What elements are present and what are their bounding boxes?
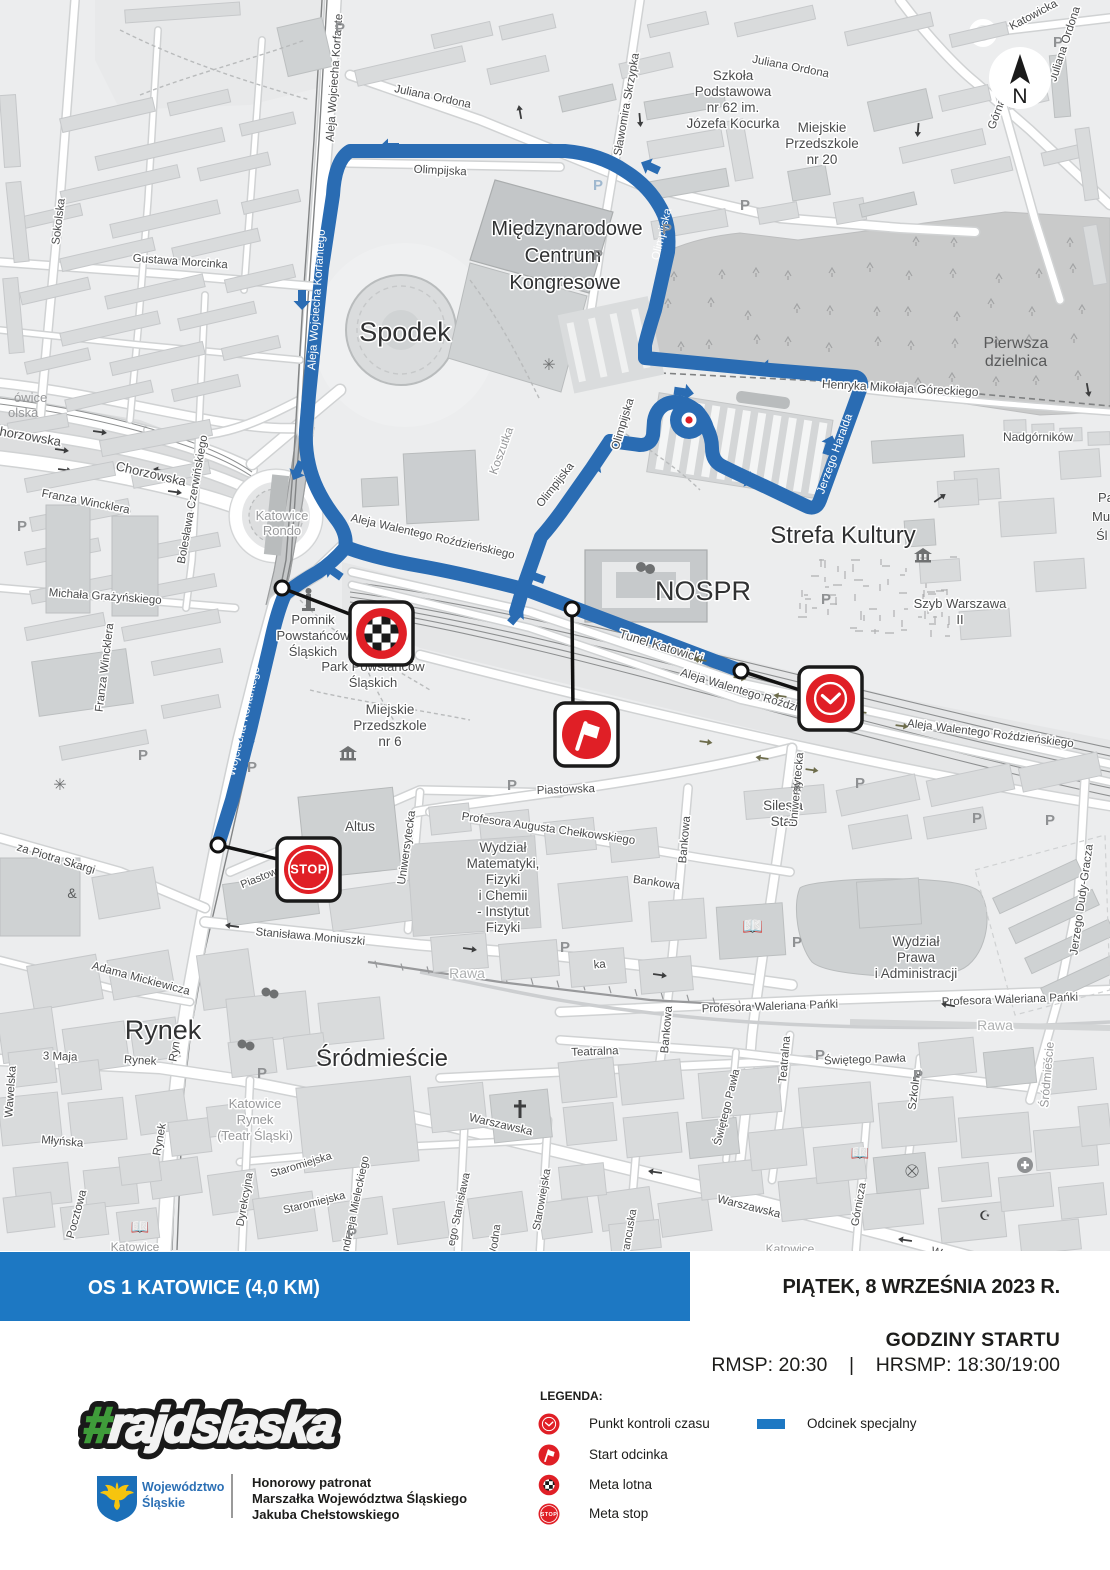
svg-text:Pierwsza: Pierwsza bbox=[984, 335, 1049, 352]
svg-text:P: P bbox=[913, 1067, 923, 1084]
svg-text:Pomnik: Pomnik bbox=[291, 612, 335, 627]
svg-text:ka: ka bbox=[593, 958, 607, 971]
svg-text:Miejskie: Miejskie bbox=[798, 120, 847, 135]
svg-text:Rynek: Rynek bbox=[124, 1054, 157, 1068]
svg-text:P: P bbox=[1053, 34, 1063, 51]
svg-text:P: P bbox=[507, 777, 517, 794]
svg-text:Katowice: Katowice bbox=[111, 1240, 160, 1251]
svg-text:Fizyki: Fizyki bbox=[486, 872, 521, 887]
svg-text:P: P bbox=[821, 591, 831, 608]
svg-text:Strefa Kultury: Strefa Kultury bbox=[770, 522, 915, 549]
svg-text:#rajdslaska: #rajdslaska bbox=[81, 1397, 338, 1453]
svg-text:Katowice: Katowice bbox=[256, 508, 309, 523]
svg-text:P: P bbox=[593, 247, 603, 264]
svg-text:Wydział: Wydział bbox=[479, 840, 526, 855]
svg-text:✳: ✳ bbox=[542, 357, 555, 374]
svg-text:nr 62 im.: nr 62 im. bbox=[707, 100, 760, 115]
svg-text:✳: ✳ bbox=[790, 780, 803, 797]
svg-text:Matematyki,: Matematyki, bbox=[467, 856, 540, 871]
svg-text:Przedszkole: Przedszkole bbox=[353, 718, 427, 733]
svg-text:nr 6: nr 6 bbox=[378, 734, 401, 749]
svg-text:P: P bbox=[662, 221, 672, 238]
svg-text:Fizyki: Fizyki bbox=[486, 920, 521, 935]
svg-text:i Administracji: i Administracji bbox=[875, 966, 958, 981]
svg-text:Śródmieście: Śródmieście bbox=[316, 1044, 448, 1072]
svg-text:Prawa: Prawa bbox=[897, 950, 936, 965]
svg-text:Śl: Śl bbox=[1096, 528, 1108, 543]
svg-text:N: N bbox=[1012, 85, 1027, 108]
svg-text:Centrum: Centrum bbox=[525, 245, 602, 267]
svg-text:P: P bbox=[815, 1047, 825, 1064]
svg-text:📖: 📖 bbox=[742, 917, 763, 936]
svg-text:P: P bbox=[335, 20, 345, 37]
svg-text:3 Maja: 3 Maja bbox=[43, 1050, 79, 1063]
svg-text:P: P bbox=[247, 759, 257, 776]
svg-text:Nadgórników: Nadgórników bbox=[1003, 430, 1073, 444]
svg-text:Szkoła: Szkoła bbox=[713, 68, 754, 83]
svg-text:Katowice: Katowice bbox=[229, 1096, 282, 1111]
svg-text:Miejskie: Miejskie bbox=[366, 702, 415, 717]
svg-text:&: & bbox=[67, 885, 77, 901]
svg-text:Piastowska: Piastowska bbox=[537, 783, 596, 797]
svg-text:Śląskich: Śląskich bbox=[349, 675, 397, 690]
svg-text:☪: ☪ bbox=[979, 1208, 991, 1223]
svg-text:Rawa: Rawa bbox=[449, 965, 485, 981]
svg-text:Katowice: Katowice bbox=[766, 1242, 815, 1251]
svg-text:Pa: Pa bbox=[1098, 490, 1110, 505]
svg-text:(Teatr Śląski): (Teatr Śląski) bbox=[217, 1128, 293, 1143]
svg-text:Kongresowe: Kongresowe bbox=[509, 272, 620, 294]
svg-text:Wydział: Wydział bbox=[892, 934, 939, 949]
svg-text:- Instytut: - Instytut bbox=[477, 904, 529, 919]
svg-text:olska: olska bbox=[8, 405, 39, 420]
svg-text:II: II bbox=[956, 612, 963, 627]
svg-text:P: P bbox=[138, 747, 148, 764]
svg-text:Szyb Warszawa: Szyb Warszawa bbox=[914, 596, 1007, 611]
svg-text:Józefa Kocurka: Józefa Kocurka bbox=[686, 116, 780, 131]
svg-text:⛒: ⛒ bbox=[905, 1163, 919, 1178]
svg-text:Rondo: Rondo bbox=[263, 523, 301, 538]
svg-text:Rynek: Rynek bbox=[237, 1112, 274, 1127]
svg-text:STOP: STOP bbox=[541, 1512, 558, 1518]
svg-text:dzielnica: dzielnica bbox=[985, 353, 1047, 370]
svg-text:STOP: STOP bbox=[290, 862, 326, 877]
svg-text:NOSPR: NOSPR bbox=[655, 576, 751, 606]
svg-text:P: P bbox=[257, 1065, 267, 1082]
svg-text:P: P bbox=[593, 177, 603, 194]
svg-text:P: P bbox=[560, 939, 570, 956]
svg-text:P: P bbox=[792, 934, 802, 951]
svg-text:i Chemii: i Chemii bbox=[479, 888, 528, 903]
svg-text:📖: 📖 bbox=[851, 1145, 870, 1162]
svg-text:nr 20: nr 20 bbox=[807, 152, 838, 167]
svg-text:Międzynarodowe: Międzynarodowe bbox=[491, 218, 642, 240]
svg-text:Podstawowa: Podstawowa bbox=[695, 84, 772, 99]
svg-text:P: P bbox=[972, 810, 982, 827]
svg-text:P: P bbox=[17, 518, 27, 535]
svg-text:Teatralna: Teatralna bbox=[571, 1045, 619, 1059]
svg-text:Mu: Mu bbox=[1092, 509, 1110, 524]
svg-text:P: P bbox=[1045, 812, 1055, 829]
svg-text:📖: 📖 bbox=[131, 1219, 150, 1236]
svg-text:Śląskich: Śląskich bbox=[289, 644, 337, 659]
svg-text:Rawa: Rawa bbox=[977, 1017, 1013, 1033]
svg-text:P: P bbox=[347, 1225, 357, 1242]
svg-text:P: P bbox=[855, 775, 865, 792]
svg-text:Rynek: Rynek bbox=[125, 1015, 202, 1045]
svg-text:Powstańców: Powstańców bbox=[277, 628, 351, 643]
svg-text:✳: ✳ bbox=[53, 777, 66, 794]
svg-text:Przedszkole: Przedszkole bbox=[785, 136, 859, 151]
svg-text:Spodek: Spodek bbox=[359, 317, 451, 347]
svg-text:P: P bbox=[740, 197, 750, 214]
svg-text:Altus: Altus bbox=[345, 819, 375, 834]
svg-text:ówice: ówice bbox=[14, 390, 47, 405]
